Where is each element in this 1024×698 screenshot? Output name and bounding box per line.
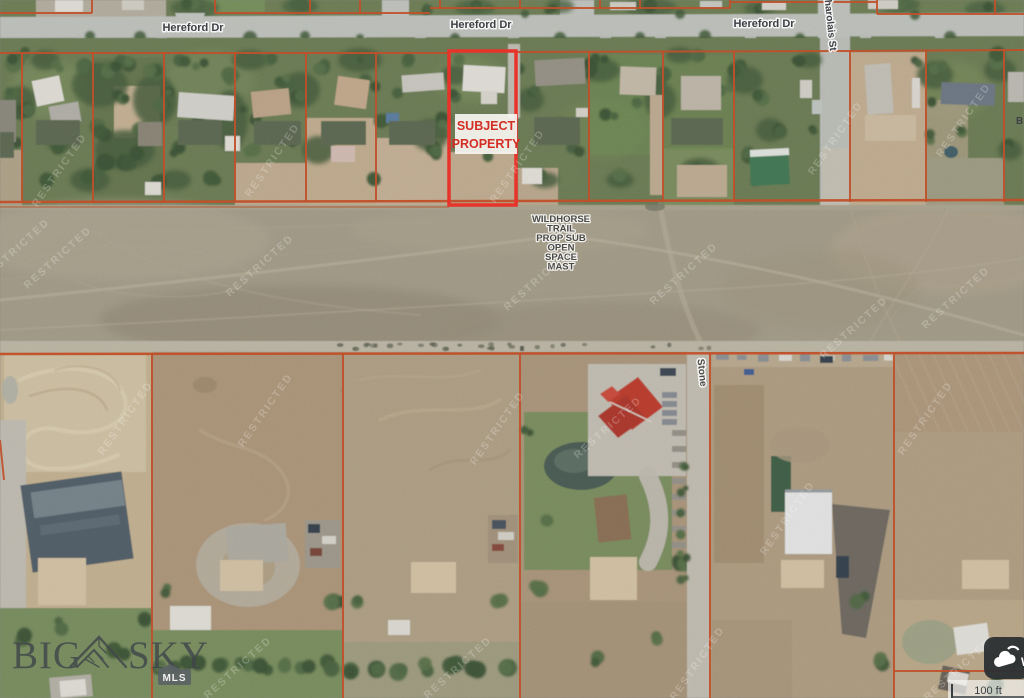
svg-text:MLS: MLS bbox=[162, 673, 186, 684]
svg-text:PROPERTY: PROPERTY bbox=[452, 137, 521, 151]
svg-text:B: B bbox=[1016, 116, 1023, 127]
svg-text:SUBJECT: SUBJECT bbox=[457, 119, 516, 133]
svg-text:Hereford Dr: Hereford Dr bbox=[450, 19, 512, 31]
svg-text:Hereford Dr: Hereford Dr bbox=[162, 22, 224, 34]
svg-text:Hereford Dr: Hereford Dr bbox=[733, 18, 795, 30]
svg-text:BIG: BIG bbox=[12, 634, 82, 677]
svg-text:100 ft: 100 ft bbox=[974, 685, 1002, 697]
